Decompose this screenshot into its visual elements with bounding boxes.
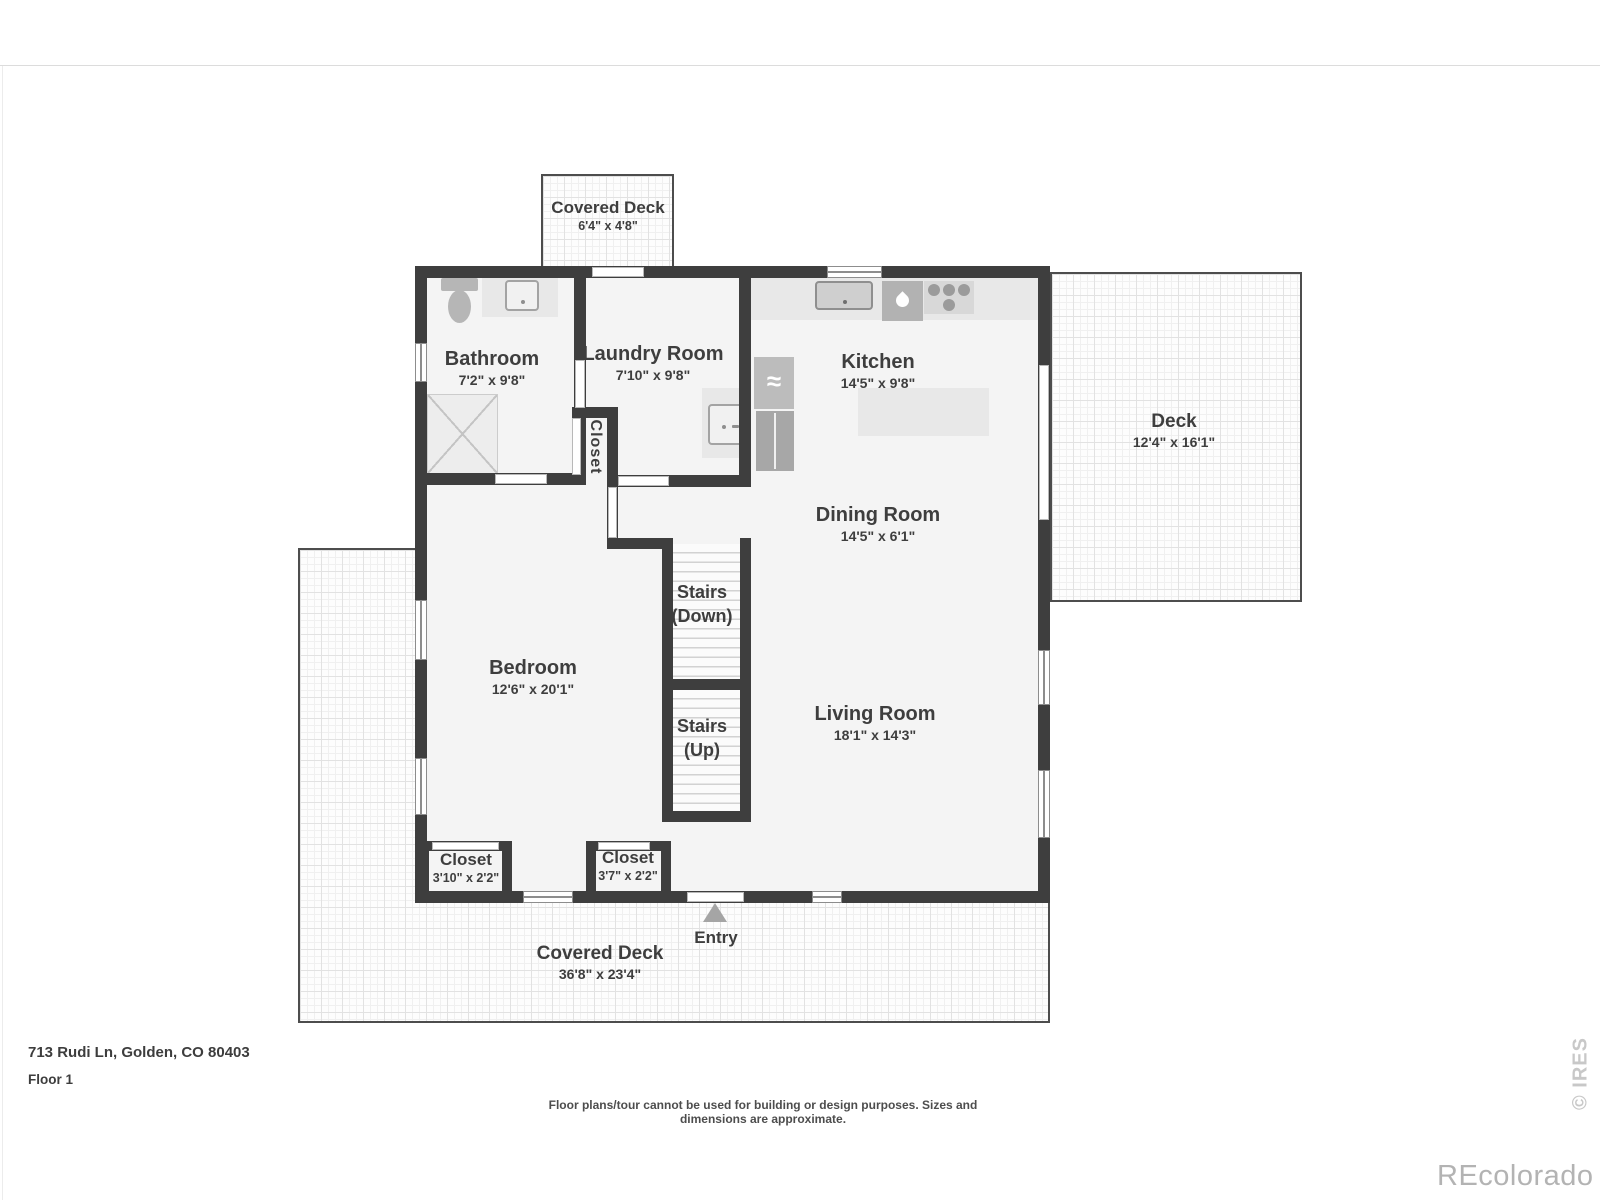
wall-stairwell-bottom	[662, 811, 751, 822]
label-bathroom: Bathroom 7'2" x 9'8"	[445, 348, 539, 390]
wall-top	[415, 266, 1050, 278]
window-bedroom-left-2	[415, 758, 427, 815]
floor-label: Floor 1	[28, 1072, 73, 1087]
door-closet1	[432, 842, 499, 850]
door-bathroom	[495, 474, 547, 484]
label-bedroom: Bedroom 12'6" x 20'1"	[489, 657, 577, 699]
label-kitchen: Kitchen 14'5" x 9'8"	[841, 351, 915, 393]
door-bedroom	[608, 487, 617, 538]
recolorado-watermark: REcolorado	[1437, 1160, 1594, 1193]
water-heater-icon: ≈	[754, 357, 794, 409]
label-deck: Deck 12'4" x 16'1"	[1133, 410, 1215, 452]
window-living-right-2	[1038, 770, 1050, 838]
shower-icon	[427, 394, 498, 474]
window-living-right-1	[1038, 650, 1050, 705]
toilet-icon	[441, 278, 479, 326]
door-laundry-hall	[618, 476, 669, 486]
dishwasher-icon	[882, 281, 923, 321]
label-stairs-down: Stairs (Down)	[672, 580, 733, 628]
property-address: 713 Rudi Ln, Golden, CO 80403	[28, 1044, 250, 1061]
label-covered-deck-bottom: Covered Deck 36'8" x 23'4"	[537, 942, 664, 984]
left-divider-line	[2, 66, 3, 1200]
disclaimer-text: Floor plans/tour cannot be used for buil…	[543, 1098, 983, 1126]
stove-icon	[924, 281, 974, 314]
label-entry: Entry	[694, 928, 737, 948]
top-divider-line	[0, 65, 1600, 66]
wall-closet2-right	[661, 841, 671, 903]
refrigerator-icon	[756, 411, 794, 471]
floorplan-page: ≈ Covered Deck 6'4" x	[0, 0, 1600, 1200]
wall-kitchen-left	[739, 266, 751, 487]
label-closet-hall: Closet	[586, 420, 604, 475]
door-entry	[687, 892, 744, 902]
wall-closet-hall-right	[607, 407, 618, 487]
label-dining-room: Dining Room 14'5" x 6'1"	[816, 504, 940, 546]
label-covered-deck-top: Covered Deck 6'4" x 4'8"	[551, 198, 664, 234]
bathroom-sink-icon	[505, 280, 539, 311]
label-stairs-up: Stairs (Up)	[677, 714, 727, 762]
door-closet-hall	[572, 418, 581, 475]
kitchen-sink-icon	[815, 281, 873, 310]
entry-arrow-icon	[703, 903, 727, 922]
wall-closet2-left	[586, 841, 596, 903]
window-bottom-1	[523, 891, 573, 903]
door-top-deck	[592, 267, 644, 277]
window-bathroom-left	[415, 343, 427, 382]
kitchen-island	[858, 388, 989, 436]
label-closet-2: Closet 3'7" x 2'2"	[598, 848, 658, 884]
window-bottom-2	[812, 891, 842, 903]
wall-closet1-right	[502, 841, 512, 903]
label-closet-1: Closet 3'10" x 2'2"	[433, 850, 499, 886]
label-living-room: Living Room 18'1" x 14'3"	[814, 703, 935, 745]
door-sliding-deck	[1039, 365, 1049, 520]
wall-stairwell-mid	[662, 679, 751, 690]
window-kitchen-top	[827, 266, 882, 278]
label-laundry-room: Laundry Room 7'10" x 9'8"	[582, 343, 723, 385]
wall-closet1-left	[419, 841, 429, 903]
ires-copyright: © IRES	[1570, 1018, 1593, 1130]
window-bedroom-left-1	[415, 600, 427, 660]
